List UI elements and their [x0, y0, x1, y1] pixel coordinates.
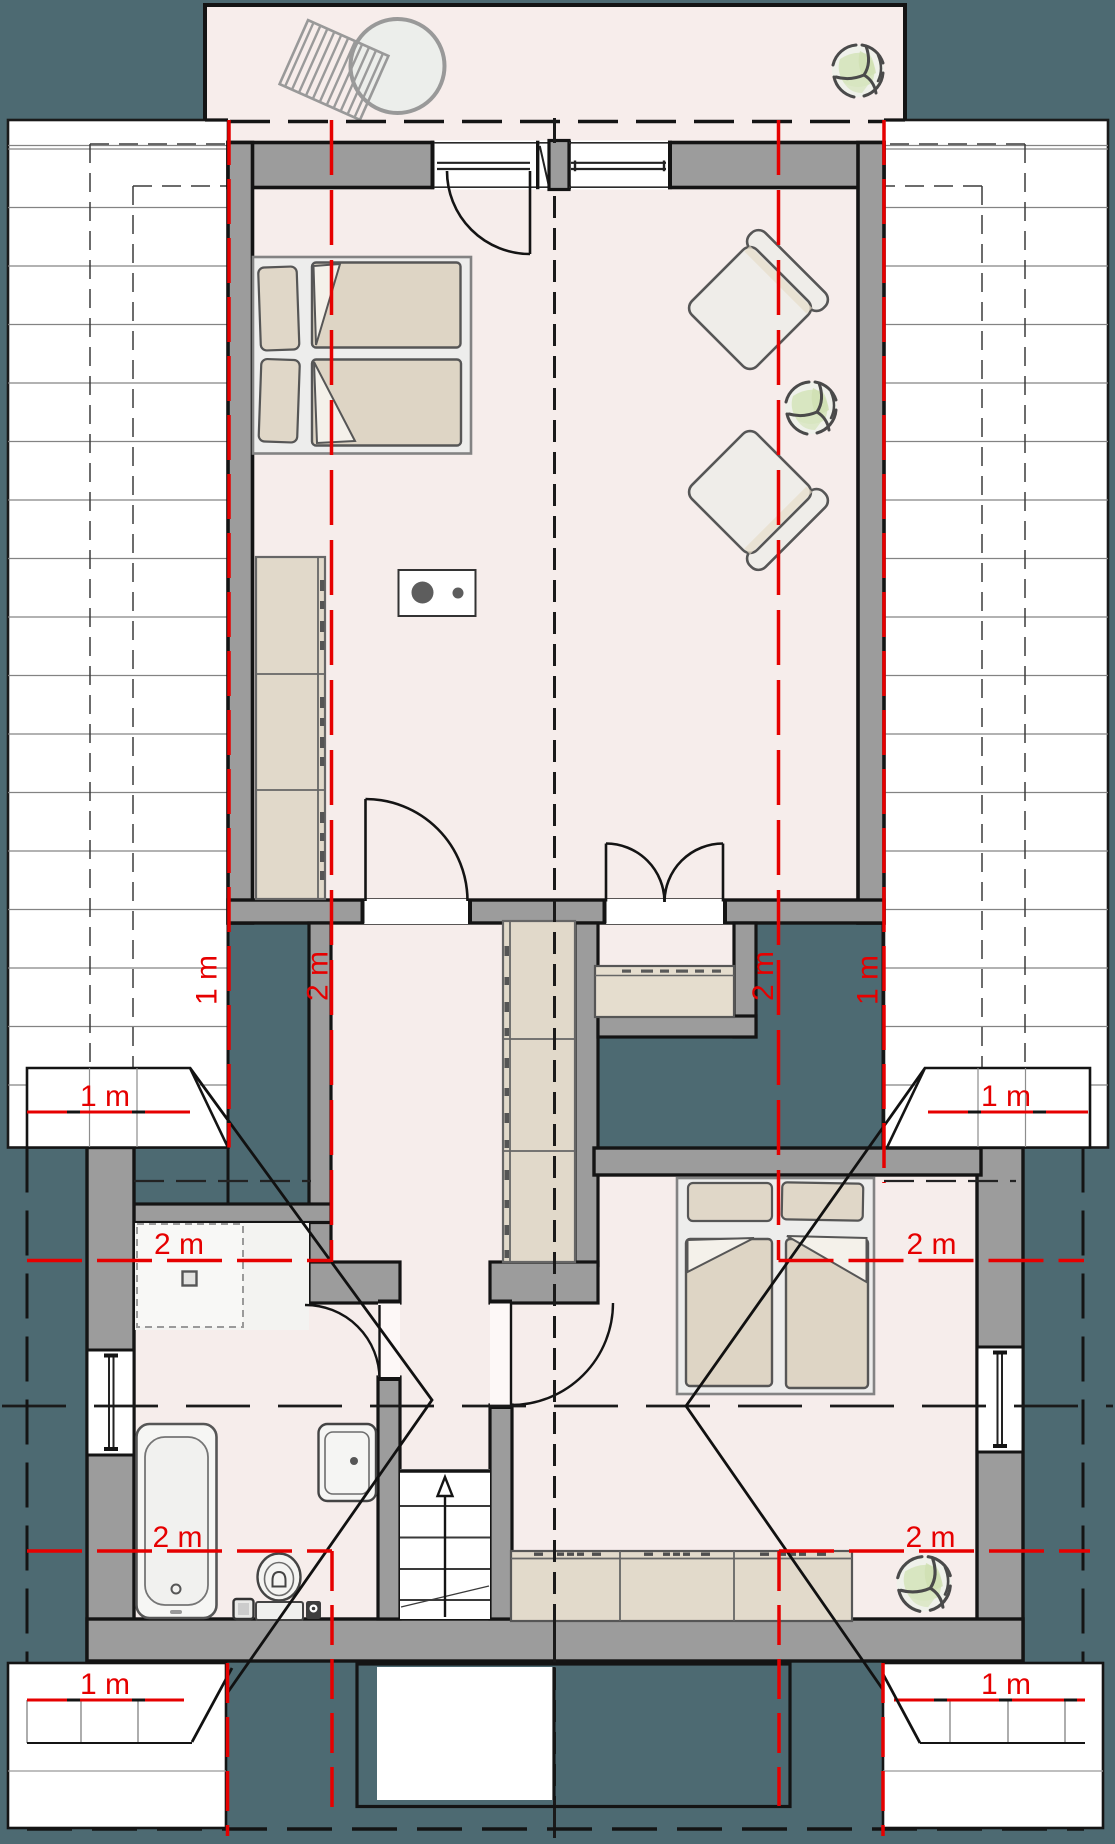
svg-text:1 m: 1 m	[981, 1668, 1031, 1701]
svg-text:2 m: 2 m	[302, 951, 335, 1001]
svg-text:2 m: 2 m	[152, 1521, 202, 1554]
svg-text:1 m: 1 m	[191, 955, 224, 1005]
svg-text:1 m: 1 m	[852, 955, 885, 1005]
svg-text:2 m: 2 m	[906, 1228, 956, 1261]
svg-text:2 m: 2 m	[154, 1228, 204, 1261]
svg-text:1 m: 1 m	[80, 1080, 130, 1113]
svg-text:2 m: 2 m	[747, 951, 780, 1001]
svg-text:2 m: 2 m	[905, 1521, 955, 1554]
svg-text:1 m: 1 m	[981, 1080, 1031, 1113]
svg-text:1 m: 1 m	[80, 1668, 130, 1701]
